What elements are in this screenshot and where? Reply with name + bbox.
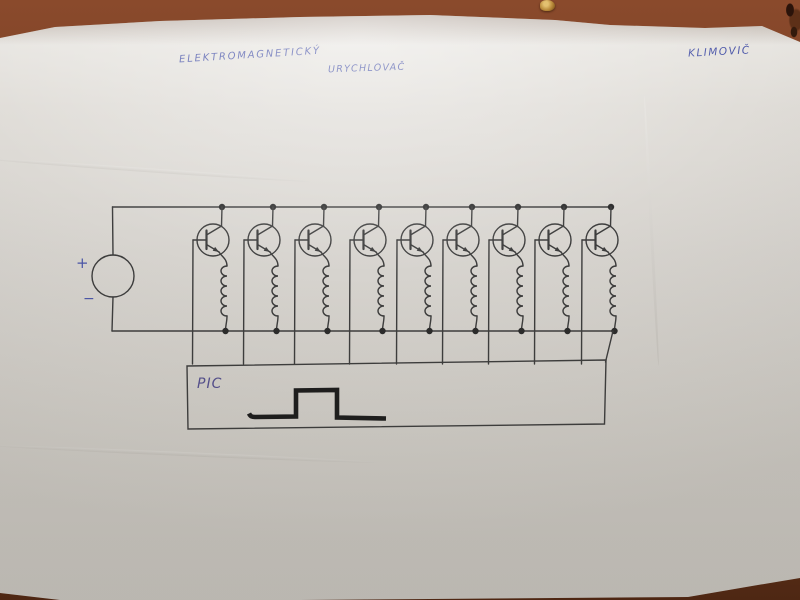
- paper-sheet: ELEKTROMAGNETICKÝ URYCHLOVAČ KLIMOVIČ: [0, 0, 800, 600]
- debris-speck: [540, 0, 555, 11]
- pic-controller: PIC: [187, 331, 613, 429]
- source-bottom-wire: [112, 297, 113, 331]
- transistor-coil-stage-9: [582, 204, 619, 364]
- pulse-waveform: [249, 390, 386, 419]
- pic-box: [187, 360, 606, 429]
- transistor-coil-stage-3: [295, 204, 332, 364]
- transistor-coil-stage-6: [443, 204, 480, 364]
- transistor-coil-stage-7: [489, 204, 526, 364]
- transistor-coil-stage-4: [350, 204, 387, 364]
- pic-ground-wire: [606, 331, 614, 362]
- transistor-coil-stage-1: [193, 204, 230, 364]
- circuit-schematic: + − PIC: [0, 0, 800, 600]
- voltage-source: + −: [76, 207, 134, 331]
- pic-label: PIC: [197, 376, 222, 392]
- transistor-coil-stage-8: [535, 204, 572, 364]
- transistor-coil-stage-5: [397, 204, 434, 364]
- source-top-wire: [113, 207, 114, 255]
- transistor-coil-stage-2: [244, 204, 281, 364]
- voltage-source-symbol: [92, 255, 134, 297]
- plus-label: +: [76, 254, 89, 272]
- minus-label: −: [83, 291, 95, 307]
